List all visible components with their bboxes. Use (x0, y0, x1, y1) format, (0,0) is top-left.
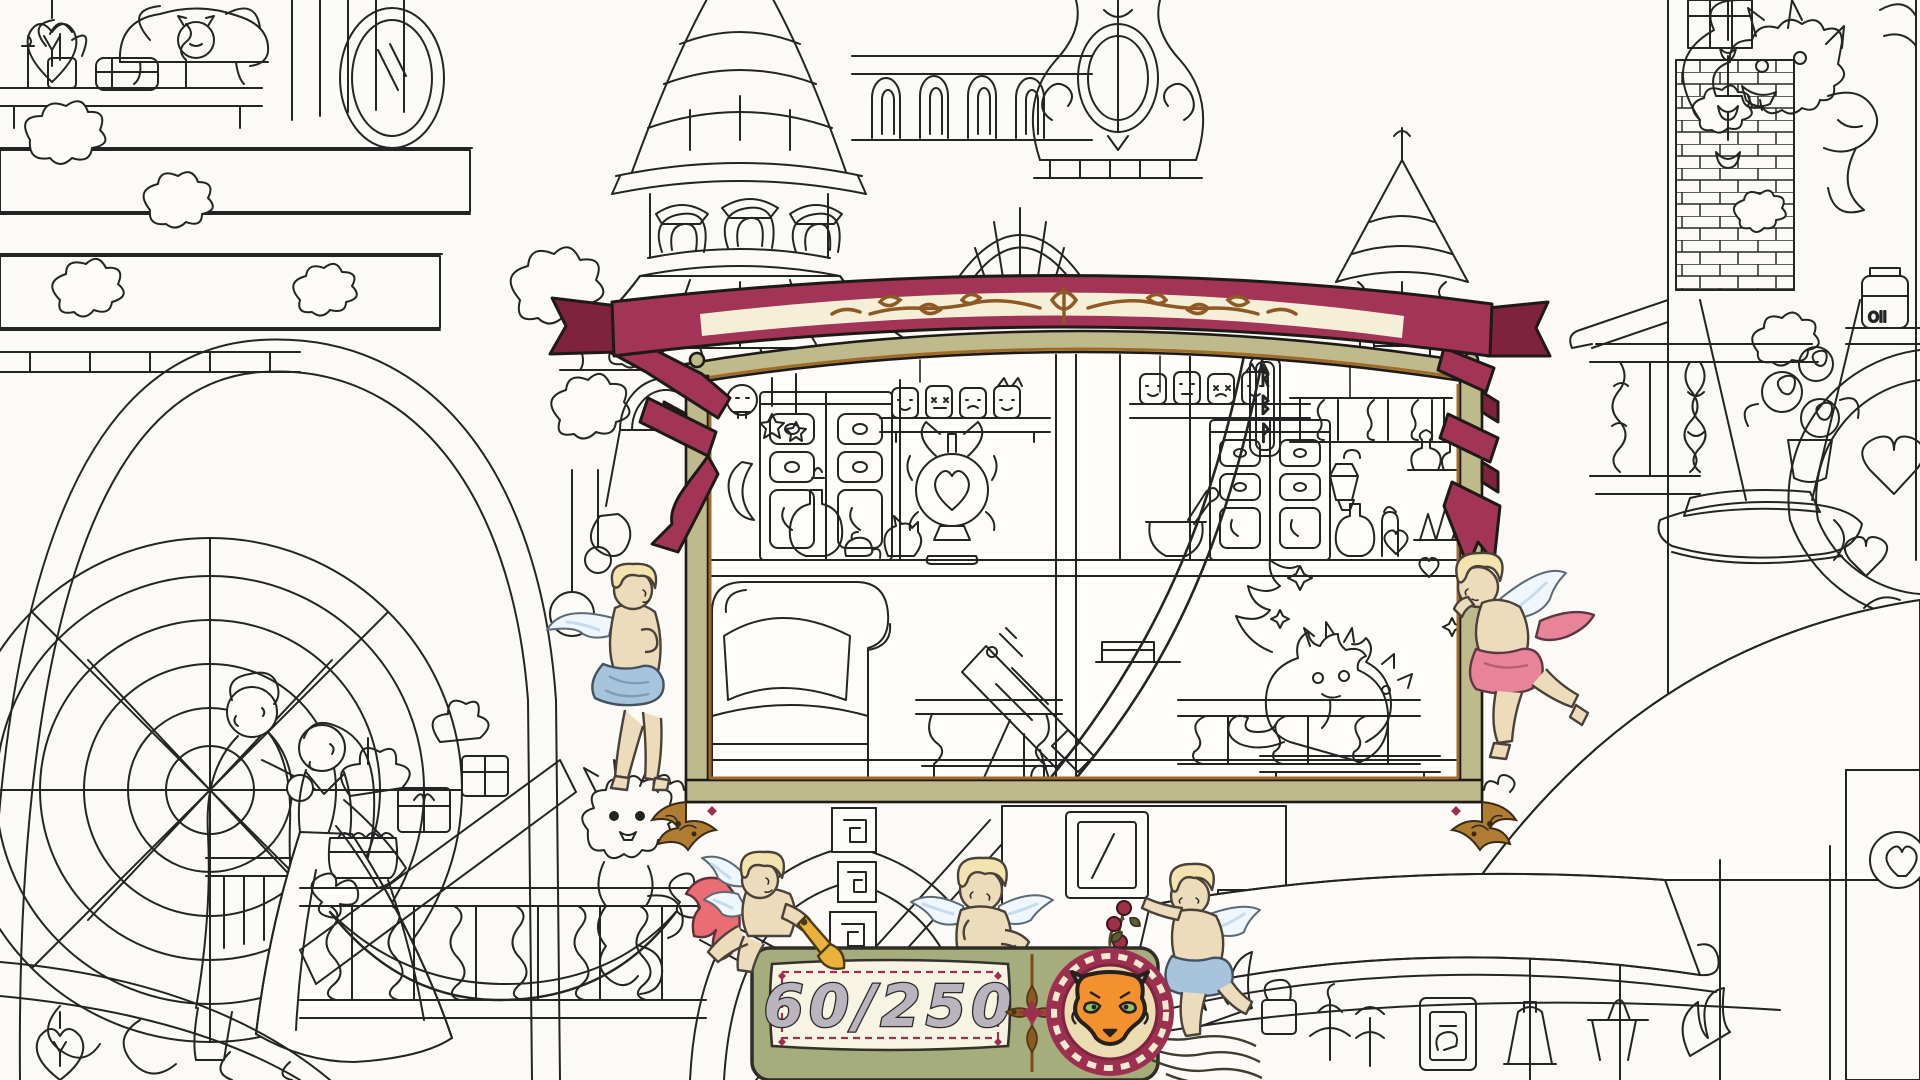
svg-text:ᛒ: ᛒ (1259, 393, 1272, 417)
svg-text:ᚹ: ᚹ (1259, 421, 1272, 445)
hanging-ornaments (550, 430, 630, 636)
oil-jar-shelf: Oil (1846, 268, 1920, 344)
left-balcony-rail (0, 352, 300, 372)
panel-backdrop (700, 320, 1466, 788)
shelf-top-left (0, 20, 262, 128)
fluffy-dragon-pet (582, 760, 682, 994)
right-house (1570, 0, 1916, 700)
counter-panel: 60/250 (764, 960, 1017, 1050)
arched-colonnade (852, 56, 1092, 140)
magnifier-panel[interactable]: ᚱ ᛒ ᚹ (606, 320, 1516, 850)
heart-window (1789, 350, 1920, 620)
hidden-object-scene[interactable]: Oil (0, 0, 1920, 1080)
heart-pendant (28, 0, 77, 82)
upper-left-window (292, 0, 444, 148)
baroque-gable (1033, 0, 1203, 178)
oil-jar-label: Oil (1868, 310, 1887, 326)
porch-swing (1659, 300, 1863, 563)
progress-counter: 60/250 (764, 972, 1017, 1040)
